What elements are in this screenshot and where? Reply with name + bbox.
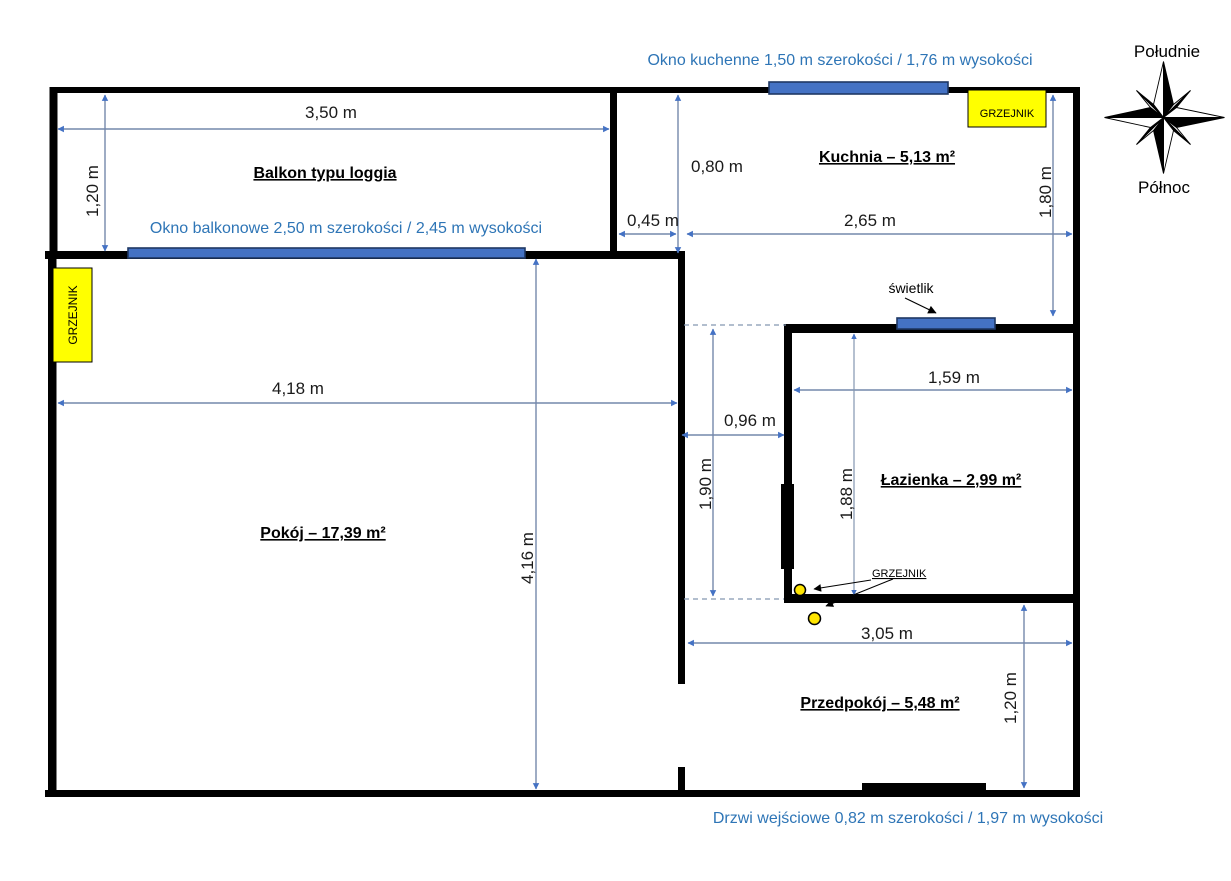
svg-text:1,20 m: 1,20 m — [83, 165, 102, 217]
svg-text:Południe: Południe — [1134, 42, 1200, 61]
svg-text:Okno kuchenne 1,50 m szerokośc: Okno kuchenne 1,50 m szerokości / 1,76 m… — [647, 52, 1032, 69]
svg-text:4,16 m: 4,16 m — [518, 532, 537, 584]
svg-text:0,96 m: 0,96 m — [724, 411, 776, 430]
svg-text:świetlik: świetlik — [888, 280, 934, 296]
svg-text:GRZEJNIK: GRZEJNIK — [872, 568, 927, 580]
svg-text:0,45 m: 0,45 m — [627, 211, 679, 230]
svg-text:Kuchnia – 5,13 m²: Kuchnia – 5,13 m² — [819, 149, 955, 166]
svg-text:0,80 m: 0,80 m — [691, 157, 743, 176]
svg-text:3,50 m: 3,50 m — [305, 103, 357, 122]
svg-text:Łazienka – 2,99 m²: Łazienka – 2,99 m² — [881, 472, 1022, 489]
svg-text:Pokój – 17,39 m²: Pokój – 17,39 m² — [260, 525, 385, 542]
svg-text:Okno balkonowe 2,50 m szerokoś: Okno balkonowe 2,50 m szerokości / 2,45 … — [150, 220, 542, 237]
svg-text:Przedpokój – 5,48 m²: Przedpokój – 5,48 m² — [800, 695, 959, 712]
svg-text:1,20 m: 1,20 m — [1001, 672, 1020, 724]
svg-text:GRZEJNIK: GRZEJNIK — [980, 108, 1035, 120]
svg-text:1,90 m: 1,90 m — [696, 458, 715, 510]
svg-text:Balkon typu loggia: Balkon typu loggia — [253, 165, 396, 182]
svg-text:2,65 m: 2,65 m — [844, 211, 896, 230]
svg-text:Drzwi wejściowe 0,82 m szeroko: Drzwi wejściowe 0,82 m szerokości / 1,97… — [713, 810, 1103, 827]
svg-text:4,18 m: 4,18 m — [272, 379, 324, 398]
svg-text:1,59 m: 1,59 m — [928, 368, 980, 387]
svg-text:3,05 m: 3,05 m — [861, 624, 913, 643]
svg-text:1,80 m: 1,80 m — [1036, 166, 1055, 218]
svg-text:Północ: Północ — [1138, 178, 1190, 197]
svg-text:GRZEJNIK: GRZEJNIK — [66, 285, 80, 344]
svg-text:1,88 m: 1,88 m — [837, 468, 856, 520]
